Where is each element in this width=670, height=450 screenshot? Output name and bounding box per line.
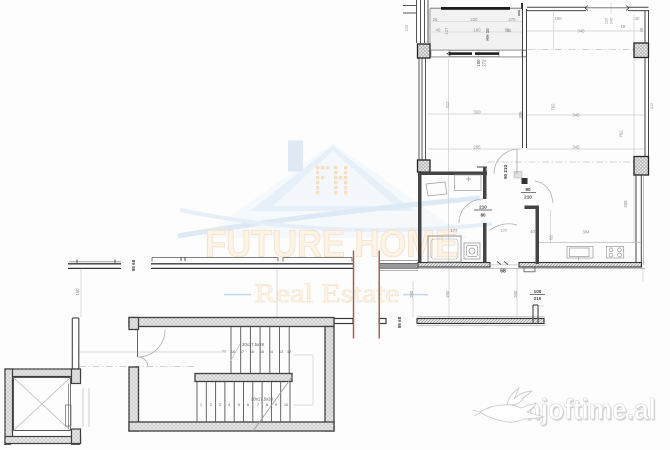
svg-text:270: 270 [508, 17, 516, 22]
svg-text:120: 120 [500, 228, 507, 233]
svg-text:2: 2 [210, 403, 212, 407]
svg-text:338: 338 [623, 200, 628, 208]
svg-text:702: 702 [619, 130, 624, 138]
svg-text:85: 85 [549, 235, 554, 240]
svg-text:17: 17 [240, 350, 244, 354]
svg-text:16: 16 [250, 350, 254, 354]
svg-text:20x17.5x28: 20x17.5x28 [251, 397, 273, 402]
svg-text:98: 98 [222, 350, 226, 354]
svg-text:12: 12 [287, 350, 291, 354]
svg-text:9: 9 [275, 403, 277, 407]
svg-text:68: 68 [500, 269, 506, 275]
svg-text:265: 265 [473, 145, 481, 150]
svg-text:304: 304 [582, 230, 590, 235]
svg-text:80: 80 [480, 213, 486, 218]
svg-text:40: 40 [530, 229, 535, 234]
svg-text:3: 3 [219, 403, 221, 407]
svg-text:100: 100 [534, 289, 542, 294]
svg-text:127: 127 [444, 27, 449, 35]
svg-text:5: 5 [238, 403, 240, 407]
svg-text:345: 345 [572, 113, 580, 118]
svg-text:210: 210 [524, 195, 532, 200]
svg-text:312: 312 [445, 101, 450, 109]
svg-text:90: 90 [525, 187, 531, 192]
svg-text:345: 345 [572, 145, 580, 150]
svg-text:Real Estate: Real Estate [255, 279, 400, 308]
svg-text:18: 18 [621, 24, 626, 29]
svg-text:8: 8 [266, 403, 268, 407]
svg-text:762: 762 [551, 103, 556, 111]
svg-text:180: 180 [473, 28, 481, 33]
svg-text:njoftime.al: njoftime.al [525, 394, 656, 426]
svg-text:4: 4 [228, 403, 230, 407]
svg-text:40: 40 [635, 16, 640, 21]
svg-text:210: 210 [534, 296, 542, 301]
svg-text:150: 150 [409, 290, 414, 298]
svg-text:220: 220 [405, 25, 409, 31]
svg-text:220: 220 [470, 17, 478, 22]
svg-text:1: 1 [200, 403, 202, 407]
svg-text:220: 220 [605, 18, 609, 24]
svg-text:40: 40 [436, 28, 441, 33]
svg-text:20x17.5x28: 20x17.5x28 [242, 342, 264, 347]
svg-text:98 68: 98 68 [397, 316, 402, 328]
svg-text:90 210: 90 210 [503, 165, 508, 179]
svg-text:312: 312 [650, 103, 654, 109]
svg-text:13: 13 [279, 350, 283, 354]
svg-text:300: 300 [473, 110, 481, 115]
svg-text:10: 10 [284, 403, 288, 407]
svg-text:240: 240 [610, 18, 614, 24]
svg-text:180: 180 [476, 59, 481, 67]
svg-text:150: 150 [75, 288, 80, 296]
svg-text:190: 190 [554, 16, 562, 21]
svg-text:272: 272 [482, 59, 487, 67]
svg-text:6: 6 [247, 403, 249, 407]
svg-text:HH 10: HH 10 [485, 28, 490, 41]
svg-text:26: 26 [433, 17, 438, 22]
svg-text:7: 7 [257, 403, 259, 407]
svg-text:85: 85 [507, 28, 512, 33]
svg-text:160: 160 [513, 290, 518, 298]
svg-text:98 68: 98 68 [131, 259, 136, 271]
svg-text:15: 15 [260, 350, 264, 354]
svg-text:45: 45 [639, 27, 644, 32]
svg-text:345: 345 [577, 29, 585, 34]
svg-text:177: 177 [450, 228, 458, 233]
svg-text:210: 210 [479, 205, 487, 210]
svg-text:14: 14 [269, 350, 273, 354]
svg-text:150: 150 [445, 290, 450, 298]
svg-text:18: 18 [231, 350, 235, 354]
svg-text:306: 306 [518, 111, 523, 119]
